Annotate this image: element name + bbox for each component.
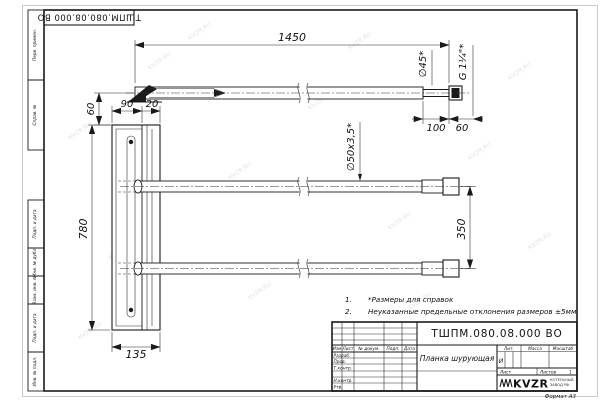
company-logo: KVZR КОТЕЛЬНЫЙ ЗАВОД РФ	[500, 377, 574, 391]
slot-pin-top	[129, 140, 133, 144]
dim-tube-gap: 350	[455, 219, 468, 240]
watermark-text: KVZR.RU	[227, 161, 253, 182]
plate-outline	[112, 125, 160, 330]
label-tube-diameter: ∅50x3,5*	[346, 123, 357, 171]
watermark-text: KVZR.RU	[67, 121, 93, 142]
tb-doc-number: ТШПМ.080.08.000 ВО	[430, 328, 562, 340]
dim-neck-length: 100	[426, 123, 445, 134]
watermark-text: KVZR.RU	[507, 61, 533, 82]
spring-icon	[500, 379, 512, 387]
slot-pin-bottom	[129, 308, 133, 312]
margin-label-inv-dubl: Инв. № дубл.	[32, 247, 38, 276]
dim-overall-length: 1450	[278, 31, 306, 44]
watermark-text: KVZR.RU	[147, 51, 173, 72]
margin-label-podp-data-2: Подп. и дата	[32, 313, 38, 343]
margin-label-sprav-no: Справ. №	[32, 104, 38, 125]
notes: 1. *Размеры для справок 2. Неуказанные п…	[345, 295, 579, 316]
margin-label-perv-primen: Перв. примен.	[32, 29, 38, 61]
note-2-number: 2.	[345, 307, 352, 316]
engineering-drawing-page: KVZR.RU KVZR.RU KVZR.RU KVZR.RU KVZR.RU …	[0, 0, 600, 400]
tb-header-podp: Подп.	[386, 346, 399, 352]
logo-name: KVZR	[513, 378, 549, 391]
margin-label-podp-data-1: Подп. и дата	[32, 209, 38, 239]
note-1-number: 1.	[345, 295, 352, 304]
label-pipe-thread: G 1¼"*	[457, 44, 469, 81]
margin-label-vzam-inv: Взам. инв. №	[32, 275, 38, 305]
watermark-text: KVZR.RU	[347, 31, 373, 52]
note-1-text: *Размеры для справок	[368, 295, 454, 304]
dim-plate-lip: 20	[146, 99, 159, 110]
watermark-text: KVZR.RU	[527, 231, 553, 252]
tb-row-razrab: Разраб.	[334, 353, 351, 359]
top-doc-number-box: ТШПМ.080.08.000 ВО	[37, 10, 142, 25]
tb-row-utv: Утв.	[334, 385, 343, 391]
logo-tagline-2: ЗАВОД РФ	[550, 383, 569, 387]
margin-label-inv-podl: Инв. № подл.	[32, 357, 38, 387]
plate-view	[112, 125, 160, 330]
tb-row-tkontr: Т.контр.	[334, 366, 353, 372]
dim-plate-width: 90	[121, 99, 134, 110]
doc-number-rotated: ТШПМ.080.08.000 ВО	[37, 12, 142, 22]
tb-row-prov: Пров.	[334, 359, 347, 365]
margin-stamp-column: Перв. примен. Справ. № Подп. и дата Инв.…	[28, 10, 44, 391]
tb-sheets-label: Листов	[539, 370, 557, 376]
tb-part-name: Планка шурующая	[420, 354, 495, 363]
tb-sheets-value: 1	[569, 370, 572, 376]
tb-lit-value: И	[499, 358, 504, 365]
tb-header-data: Дата	[403, 346, 415, 352]
watermark-text: KVZR.RU	[247, 281, 273, 302]
tb-row-nkontr: Н.контр.	[334, 378, 353, 384]
dim-plate-base: 135	[126, 348, 147, 361]
tb-scale-label: Масштаб	[553, 346, 574, 352]
dim-plate-height: 780	[77, 219, 90, 240]
note-2-text: Неуказанные предельные отклонения размер…	[368, 307, 579, 316]
tb-lit-label: Лит.	[503, 346, 514, 352]
watermark-text: KVZR.RU	[77, 321, 103, 342]
dim-top-offset: 60	[86, 103, 97, 116]
watermark-text: KVZR.RU	[387, 211, 413, 232]
tb-header-izm: Изм	[333, 346, 342, 352]
logo-tagline-1: КОТЕЛЬНЫЙ	[550, 377, 574, 382]
tb-header-dokum: № докум.	[357, 346, 379, 352]
dim-thread-length: 60	[456, 123, 469, 134]
tb-mass-label: Масса	[528, 346, 542, 352]
drawing-canvas: KVZR.RU KVZR.RU KVZR.RU KVZR.RU KVZR.RU …	[0, 0, 600, 400]
label-end-diameter: ∅45*	[418, 51, 429, 77]
tb-sheet-label: Лист	[499, 370, 511, 376]
watermark-text: KVZR.RU	[187, 21, 213, 42]
tb-header-list: Лист	[342, 346, 354, 352]
format-label: Формат А3	[545, 394, 577, 400]
title-block: Изм Лист № докум. Подп. Дата Разраб. Про…	[332, 322, 577, 391]
watermark-text: KVZR.RU	[467, 141, 493, 162]
